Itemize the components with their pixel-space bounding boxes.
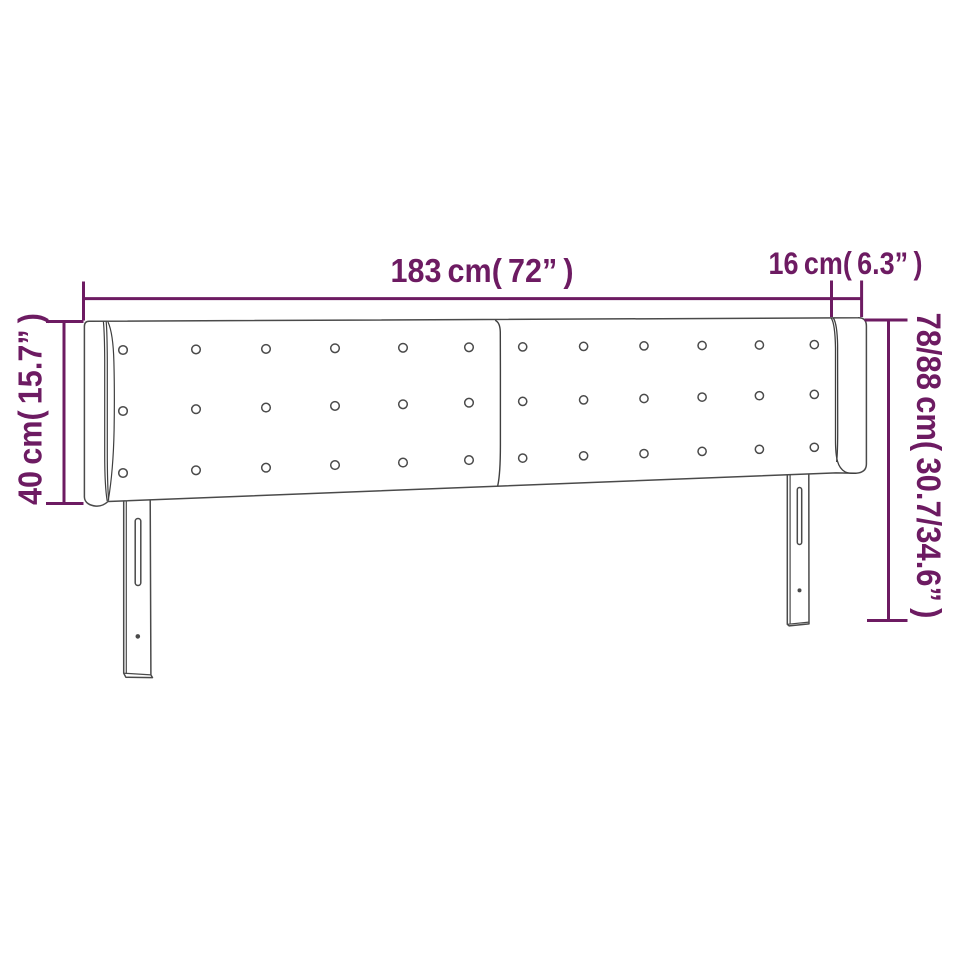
svg-text:40 cm( 15.7” ): 40 cm( 15.7” ) xyxy=(13,313,50,505)
svg-text:183 cm( 72” ): 183 cm( 72” ) xyxy=(391,252,574,289)
svg-text:78/88 cm( 30.7/34.6” ): 78/88 cm( 30.7/34.6” ) xyxy=(909,313,947,619)
svg-text:16 cm( 6.3” ): 16 cm( 6.3” ) xyxy=(769,245,923,281)
